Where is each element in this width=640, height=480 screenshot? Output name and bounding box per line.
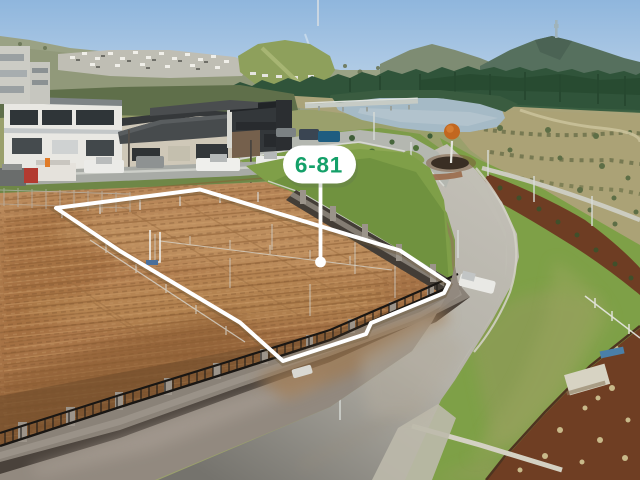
svg-text:6-81: 6-81 bbox=[295, 153, 343, 178]
